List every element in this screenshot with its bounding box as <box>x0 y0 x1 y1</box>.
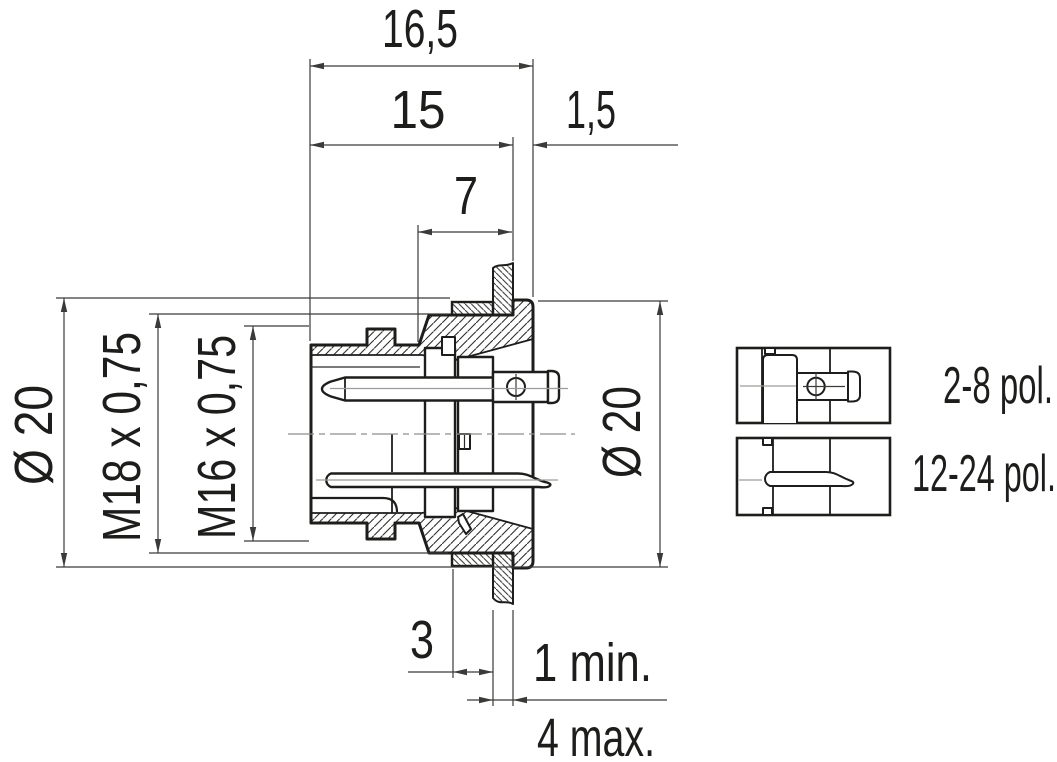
dim-diameter-right-label: Ø 20 <box>592 386 652 478</box>
panel-top <box>493 263 513 315</box>
arrow <box>61 298 67 312</box>
insulator-block <box>425 348 455 517</box>
arrow <box>250 527 256 541</box>
variant-a-block <box>763 355 797 423</box>
lock-nut-bottom <box>452 553 493 566</box>
arrow <box>657 301 663 315</box>
solder-cup-cap <box>548 371 559 403</box>
variant-a-notch <box>765 348 775 354</box>
dim-panel-min-label: 1 min. <box>533 633 652 693</box>
dim-overall-width-label: 16,5 <box>382 0 458 59</box>
dim-thread-inner-label: M16 x 0,75 <box>187 335 247 539</box>
variant-a-contact-cap <box>848 372 860 402</box>
arrow <box>479 697 493 703</box>
arrow <box>418 229 432 235</box>
dim-nut-thickness-label: 3 <box>410 610 434 670</box>
technical-drawing-canvas: 16,5 15 1,5 7 3 1 min. 4 max. Ø 20 M18 x… <box>0 0 1057 762</box>
arrow <box>310 142 324 148</box>
arrow <box>519 63 533 69</box>
dim-diameter-left-label: Ø 20 <box>4 385 64 485</box>
arrow <box>155 539 161 553</box>
dim-panel-max-label: 4 max. <box>537 708 655 762</box>
arrow <box>61 553 67 567</box>
arrow <box>498 229 512 235</box>
insulator-key-tab <box>442 337 455 355</box>
arrow <box>310 63 324 69</box>
variant-a-label: 2-8 pol. <box>943 357 1053 415</box>
variant-b-notch-bottom <box>763 508 772 515</box>
dim-flange-thickness-label: 1,5 <box>566 80 616 140</box>
arrow <box>657 553 663 567</box>
arrow <box>533 142 547 148</box>
arrow <box>453 669 467 675</box>
variant-b-notch-top <box>763 438 772 445</box>
arrow <box>479 669 493 675</box>
dim-front-length-label: 7 <box>454 166 478 226</box>
variant-view-2-8-pol: 2-8 pol. <box>737 348 1053 423</box>
panel-bottom <box>493 553 513 604</box>
arrow <box>155 314 161 328</box>
dim-front-to-flange-label: 15 <box>391 80 446 140</box>
arrow <box>499 142 513 148</box>
lock-nut-top <box>452 302 493 315</box>
arrow <box>250 326 256 340</box>
arrow <box>513 697 527 703</box>
variant-view-12-24-pol: 12-24 pol. <box>737 438 1056 515</box>
dim-thread-outer-label: M18 x 0,75 <box>92 332 152 542</box>
variant-b-label: 12-24 pol. <box>912 445 1056 503</box>
